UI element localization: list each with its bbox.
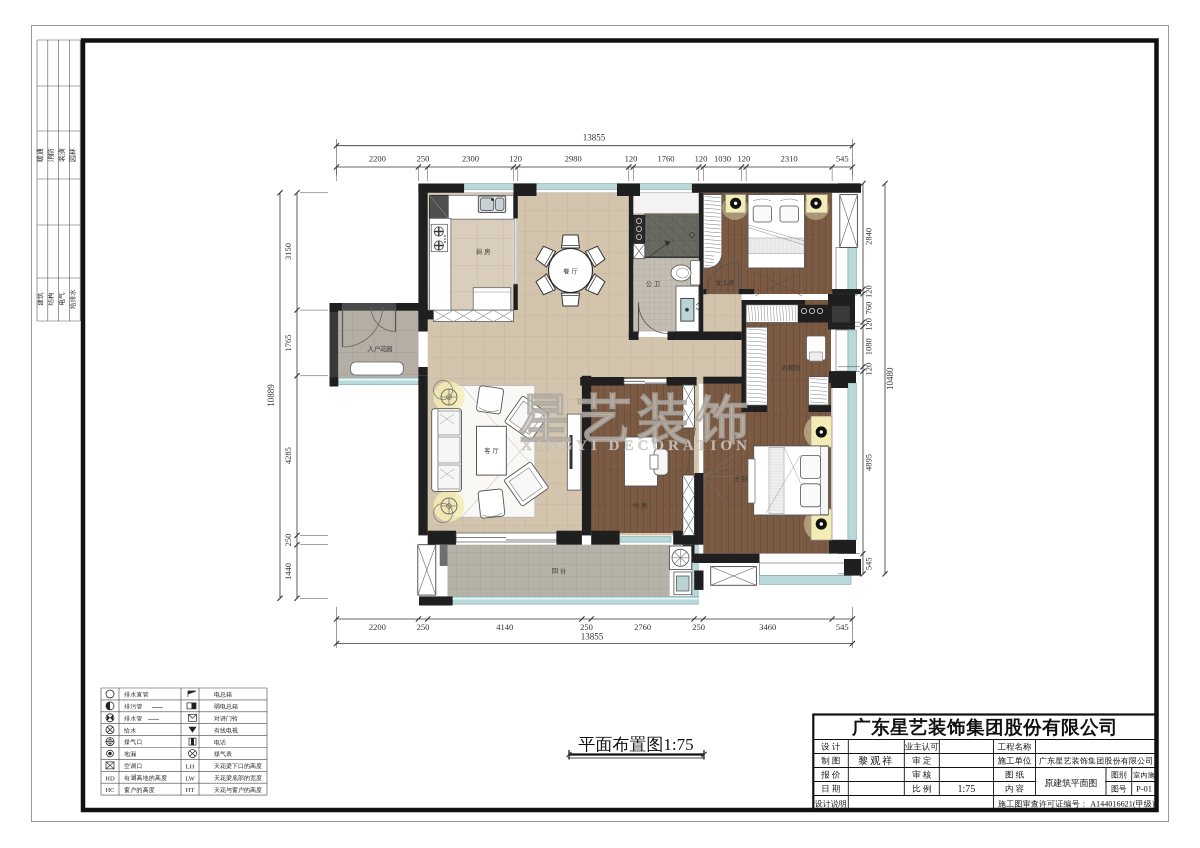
svg-text:图号: 图号 xyxy=(1111,785,1127,794)
svg-text:HD: HD xyxy=(105,775,115,782)
svg-text:暖通: 暖通 xyxy=(36,148,44,162)
svg-text:2840: 2840 xyxy=(864,228,874,245)
svg-text:1760: 1760 xyxy=(658,154,675,164)
svg-text:业主认可: 业主认可 xyxy=(905,742,940,752)
svg-text:1030: 1030 xyxy=(714,154,731,164)
svg-text:客 厅: 客 厅 xyxy=(484,447,499,455)
svg-text:施工图审查许可证编号： A144016621(甲级): 施工图审查许可证编号： A144016621(甲级) xyxy=(998,800,1155,809)
svg-text:图 纸: 图 纸 xyxy=(1005,770,1025,780)
svg-text:弱电总箱: 弱电总箱 xyxy=(214,704,238,711)
svg-text:120: 120 xyxy=(625,154,638,164)
svg-text:HT: HT xyxy=(186,787,195,794)
svg-text:电话: 电话 xyxy=(214,739,226,746)
svg-text:天花梁下口的高度: 天花梁下口的高度 xyxy=(214,762,262,770)
svg-text:广东星艺装饰集团股份有限公司: 广东星艺装饰集团股份有限公司 xyxy=(851,717,1118,739)
svg-text:报 价: 报 价 xyxy=(820,770,841,780)
svg-text:2760: 2760 xyxy=(634,622,651,632)
svg-text:4285: 4285 xyxy=(283,447,293,464)
svg-text:比 例: 比 例 xyxy=(912,784,932,794)
svg-text:审 定: 审 定 xyxy=(912,756,932,766)
svg-text:制 图: 制 图 xyxy=(821,756,841,766)
svg-text:设计说明: 设计说明 xyxy=(815,800,847,809)
svg-text:1080: 1080 xyxy=(864,338,874,355)
svg-text:2300: 2300 xyxy=(462,154,479,164)
svg-text:有线电视: 有线电视 xyxy=(214,727,238,734)
svg-text:1:75: 1:75 xyxy=(958,784,976,795)
svg-text:建筑: 建筑 xyxy=(36,292,44,307)
svg-text:室内施: 室内施 xyxy=(1133,772,1155,780)
svg-text:结构: 结构 xyxy=(47,292,55,306)
svg-text:黎观祥: 黎观祥 xyxy=(858,755,894,767)
svg-text:13855: 13855 xyxy=(583,133,606,143)
svg-text:XINGYI DECORATION: XINGYI DECORATION xyxy=(521,438,751,454)
svg-text:有湖高地的高度: 有湖高地的高度 xyxy=(124,774,167,782)
svg-text:1765: 1765 xyxy=(283,335,293,352)
svg-text:图别: 图别 xyxy=(1111,771,1127,780)
svg-text:2200: 2200 xyxy=(369,154,386,164)
svg-text:天花梁底部的宽度: 天花梁底部的宽度 xyxy=(214,774,262,782)
svg-text:1440: 1440 xyxy=(283,563,293,580)
svg-text:排污管: 排污管 xyxy=(124,704,143,711)
svg-text:餐 厅: 餐 厅 xyxy=(563,268,578,276)
svg-text:厨 房: 厨 房 xyxy=(476,248,491,256)
svg-text:10889: 10889 xyxy=(266,384,276,407)
svg-text:3150: 3150 xyxy=(283,243,293,260)
svg-text:120: 120 xyxy=(864,363,874,376)
svg-text:HC: HC xyxy=(105,787,114,794)
svg-text:给水: 给水 xyxy=(124,727,136,734)
svg-text:平面布置图1:75: 平面布置图1:75 xyxy=(578,735,693,754)
svg-text:120: 120 xyxy=(864,285,874,298)
svg-text:阳 台: 阳 台 xyxy=(552,568,566,575)
svg-text:广东星艺装饰集团股份有限公司: 广东星艺装饰集团股份有限公司 xyxy=(1039,757,1154,766)
svg-text:120: 120 xyxy=(509,154,522,164)
svg-text:250: 250 xyxy=(417,154,430,164)
svg-text:10480: 10480 xyxy=(885,367,895,390)
svg-text:3460: 3460 xyxy=(759,622,776,632)
svg-text:煤气口: 煤气口 xyxy=(124,739,143,746)
svg-text:电气: 电气 xyxy=(58,292,66,306)
svg-text:120: 120 xyxy=(738,154,751,164)
svg-text:施工单位: 施工单位 xyxy=(998,756,1033,766)
svg-text:煤气表: 煤气表 xyxy=(214,751,232,758)
svg-text:主 卧: 主 卧 xyxy=(734,475,748,483)
svg-text:250: 250 xyxy=(692,622,705,632)
svg-text:女儿房: 女儿房 xyxy=(716,279,735,287)
svg-text:书 房: 书 房 xyxy=(633,502,647,510)
svg-text:园林: 园林 xyxy=(69,148,77,162)
svg-text:545: 545 xyxy=(836,622,849,632)
svg-text:P-01: P-01 xyxy=(1136,784,1152,794)
svg-text:4895: 4895 xyxy=(864,454,874,471)
svg-text:4140: 4140 xyxy=(496,622,513,632)
svg-text:对讲门铃: 对讲门铃 xyxy=(214,715,238,723)
svg-text:250: 250 xyxy=(417,622,430,632)
svg-text:120: 120 xyxy=(695,154,708,164)
svg-text:排水管: 排水管 xyxy=(124,715,143,722)
svg-text:给排水: 给排水 xyxy=(69,289,77,309)
svg-text:250: 250 xyxy=(283,534,293,547)
svg-text:审 核: 审 核 xyxy=(912,770,932,780)
svg-text:2980: 2980 xyxy=(565,154,582,164)
svg-text:装潢: 装潢 xyxy=(58,148,66,162)
svg-text:日 期: 日 期 xyxy=(821,784,841,794)
svg-text:545: 545 xyxy=(836,154,849,164)
svg-text:排水直管: 排水直管 xyxy=(124,692,149,699)
svg-text:2200: 2200 xyxy=(369,622,386,632)
svg-text:545: 545 xyxy=(864,557,874,570)
svg-text:250: 250 xyxy=(580,622,593,632)
svg-text:13855: 13855 xyxy=(581,632,604,642)
svg-text:天花与窗户的高度: 天花与窗户的高度 xyxy=(214,786,262,794)
svg-text:设 计: 设 计 xyxy=(821,742,841,752)
svg-text:衣帽间: 衣帽间 xyxy=(782,364,801,372)
svg-text:120: 120 xyxy=(864,318,874,331)
svg-text:工程名称: 工程名称 xyxy=(998,742,1033,752)
svg-text:电总箱: 电总箱 xyxy=(214,692,232,699)
svg-text:消防: 消防 xyxy=(47,148,55,162)
svg-text:地漏: 地漏 xyxy=(123,751,136,758)
svg-text:内 容: 内 容 xyxy=(1005,784,1025,794)
svg-text:原建筑平面图: 原建筑平面图 xyxy=(1044,778,1097,788)
svg-text:入户花园: 入户花园 xyxy=(367,345,392,353)
svg-text:公 卫: 公 卫 xyxy=(646,280,661,288)
svg-text:LH: LH xyxy=(186,763,195,770)
svg-text:窗户的高度: 窗户的高度 xyxy=(124,786,155,794)
svg-text:空调口: 空调口 xyxy=(124,762,143,770)
svg-text:LW: LW xyxy=(185,775,195,782)
svg-text:760: 760 xyxy=(864,302,874,315)
svg-text:2310: 2310 xyxy=(781,154,798,164)
